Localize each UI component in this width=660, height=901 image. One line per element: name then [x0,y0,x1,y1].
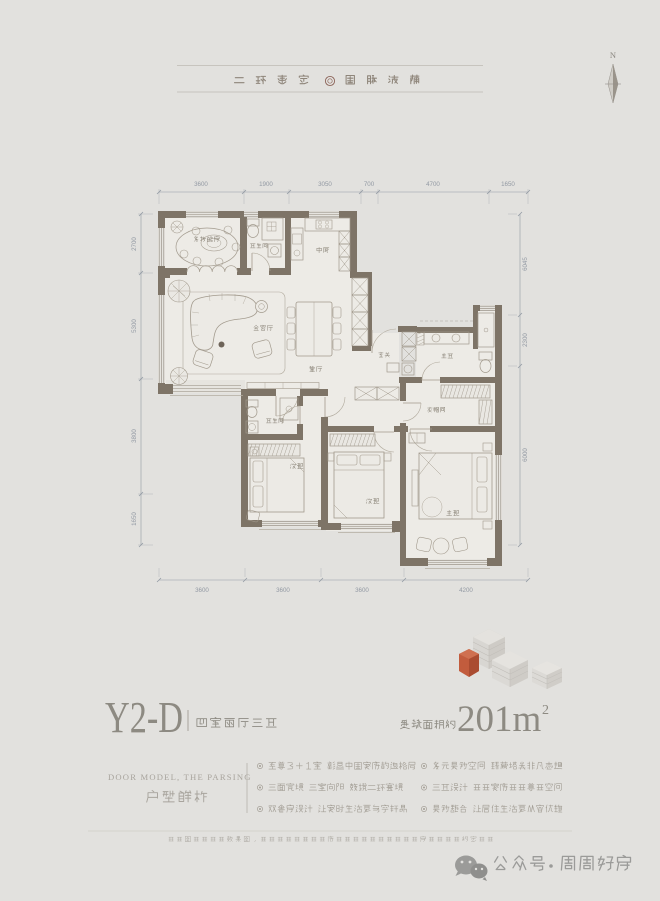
svg-text:3600: 3600 [276,587,290,594]
svg-text:N: N [610,50,616,60]
svg-text:3800: 3800 [131,429,138,443]
svg-text:5300: 5300 [131,319,138,333]
svg-text:4700: 4700 [426,181,440,188]
svg-text:DOOR MODEL, THE PARSING: DOOR MODEL, THE PARSING [108,772,252,782]
svg-text:1650: 1650 [131,512,138,526]
svg-text:6000: 6000 [522,448,529,462]
svg-text:2700: 2700 [131,237,138,251]
svg-text:4200: 4200 [459,587,473,594]
svg-text:3050: 3050 [318,181,332,188]
svg-text:2300: 2300 [522,333,529,347]
svg-text:1650: 1650 [501,181,515,188]
svg-text:Y2-D: Y2-D [105,693,183,742]
svg-text:6045: 6045 [522,257,529,271]
svg-text:1900: 1900 [259,181,273,188]
svg-text:201m: 201m [457,699,542,740]
svg-text:2: 2 [542,703,549,718]
svg-text:3600: 3600 [195,587,209,594]
svg-text:3600: 3600 [355,587,369,594]
svg-text:700: 700 [364,181,375,188]
svg-text:3600: 3600 [194,181,208,188]
